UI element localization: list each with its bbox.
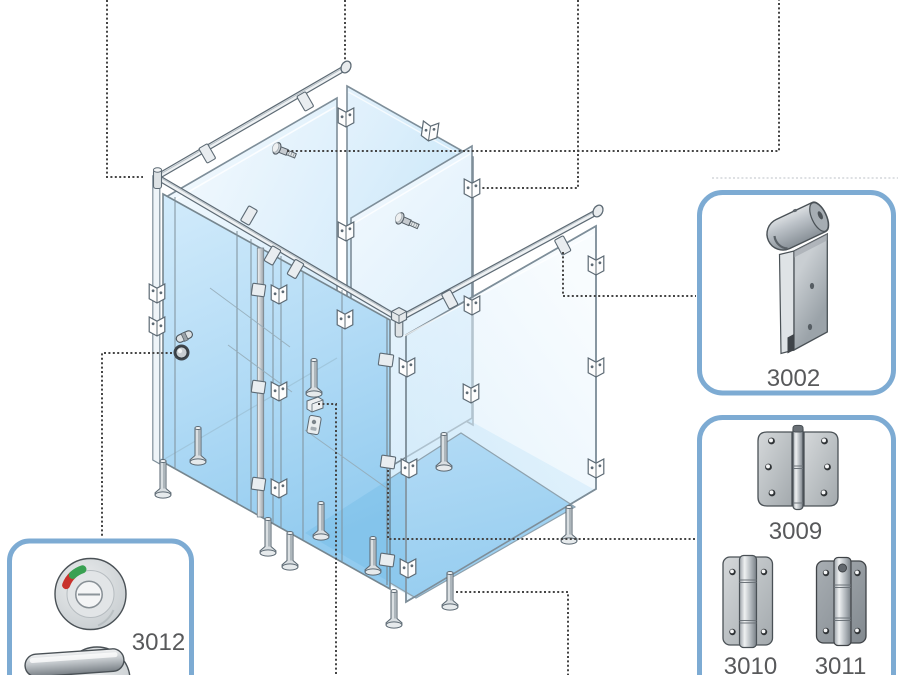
svg-text:3010: 3010 <box>724 653 777 675</box>
svg-text:3011: 3011 <box>815 653 867 675</box>
svg-text:3002: 3002 <box>767 365 820 392</box>
svg-text:3012: 3012 <box>132 629 185 656</box>
svg-text:3009: 3009 <box>769 518 822 545</box>
